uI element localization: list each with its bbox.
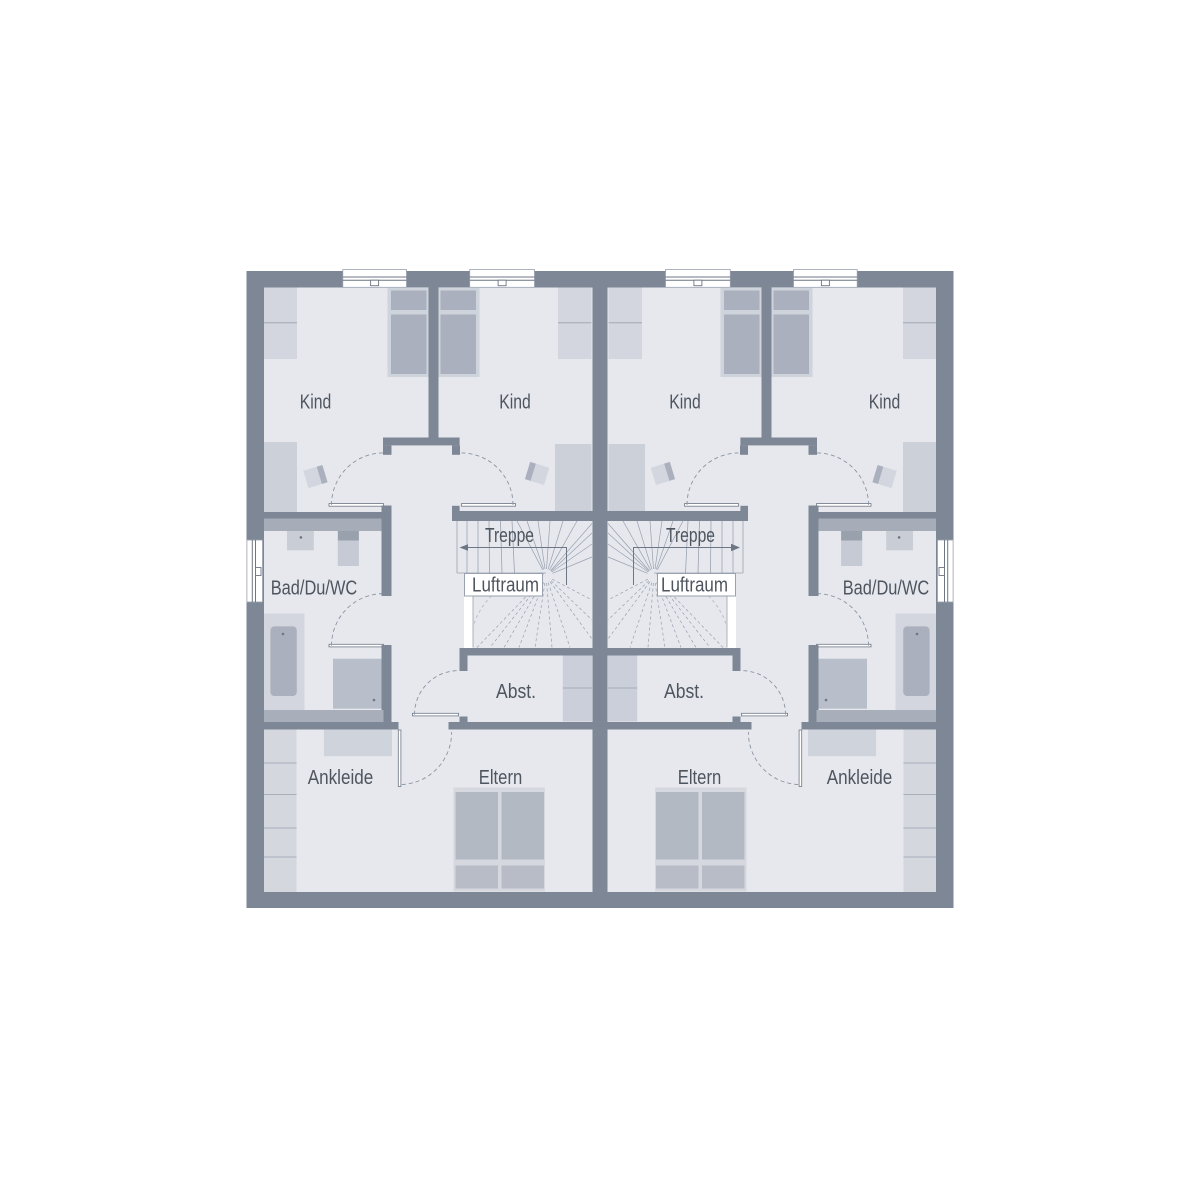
svg-text:Abst.: Abst. xyxy=(664,681,704,703)
svg-text:Kind: Kind xyxy=(300,392,332,414)
svg-text:Luftraum: Luftraum xyxy=(472,575,539,597)
svg-text:Ankleide: Ankleide xyxy=(827,767,893,789)
svg-text:Kind: Kind xyxy=(499,392,531,414)
svg-text:Luftraum: Luftraum xyxy=(661,575,728,597)
svg-text:Eltern: Eltern xyxy=(678,767,722,789)
svg-text:Treppe: Treppe xyxy=(666,525,715,547)
svg-text:Abst.: Abst. xyxy=(496,681,536,703)
svg-text:Kind: Kind xyxy=(869,392,901,414)
svg-text:Bad/Du/WC: Bad/Du/WC xyxy=(843,578,930,600)
svg-text:Bad/Du/WC: Bad/Du/WC xyxy=(271,578,358,600)
svg-text:Treppe: Treppe xyxy=(485,525,534,547)
svg-text:Kind: Kind xyxy=(669,392,701,414)
svg-text:Eltern: Eltern xyxy=(479,767,523,789)
svg-text:Ankleide: Ankleide xyxy=(308,767,374,789)
